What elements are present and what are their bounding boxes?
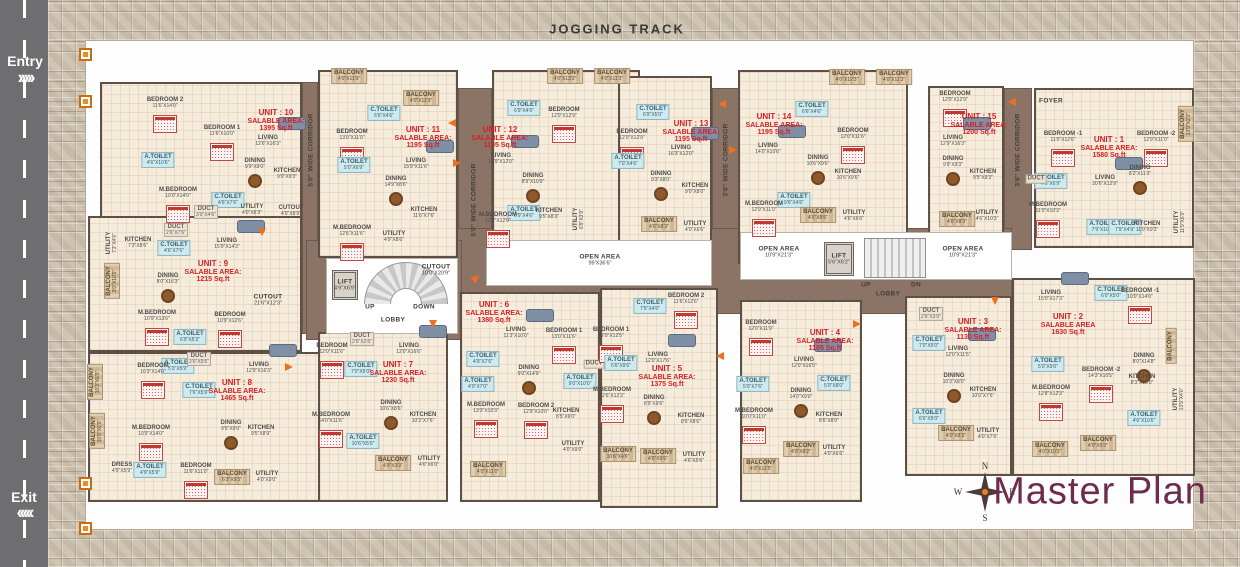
room-label-a-toilet: A.TOILET5'0"X9'0" <box>1031 356 1064 372</box>
room-label-living: LIVING14'0"X10'6" <box>755 143 780 155</box>
room-label-m-bedroom: M.BEDROOM12'9"X11'0" <box>745 201 783 213</box>
room-label-balcony: BALCONY4'0"X13'3" <box>547 68 583 84</box>
room-label-balcony: BALCONY4'0"X11'0" <box>470 461 506 477</box>
room-label-living: LIVING12'0"X11'5" <box>945 346 970 358</box>
unit-label-unit-4: UNIT : 4SALABLE AREA:1105 Sq.ft <box>797 329 854 353</box>
unit-label-unit-9: UNIT : 9SALABLE AREA:1215 Sq.ft <box>185 260 242 284</box>
room-label-dining: DINING14'0"X9'0" <box>790 388 813 400</box>
compass-center-dot <box>982 489 988 495</box>
room-label-a-toilet: A.TOILET5'6"X9'6" <box>604 355 637 371</box>
unit-label-unit-12: UNIT : 12SALABLE AREA:1195 Sq.ft <box>472 126 529 150</box>
room-label-kitchen: KITCHEN10'3"X7'6" <box>410 412 437 424</box>
plan-label-cutout: CUTOUT21'6"X12'3" <box>254 293 283 306</box>
room-label-a-toilet: A.TOILET4'6"X10'6" <box>1127 410 1160 426</box>
bed-icon <box>552 125 576 143</box>
bed-icon <box>1128 306 1152 324</box>
direction-arrow-icon <box>991 297 999 305</box>
plan-label-3-6-wide-corridor: 3'6" WIDE CORRIDOR <box>722 123 729 196</box>
room-label-a-toilet: A.TOILET4'6"X10'6" <box>141 152 174 168</box>
room-label-utility: UTILITY4'0"X6'3" <box>241 204 264 216</box>
entry-chevrons-icon: ››››› <box>18 68 33 89</box>
room-label-balcony: BALCONY4'6"X9'6" <box>640 448 676 464</box>
room-label-dining: DINING9'0"X14'9" <box>518 365 541 377</box>
room-label-dining: DINING8'9"X10'9" <box>522 173 545 185</box>
plan-label-open-area: OPEN AREA99'X36'6" <box>579 253 620 266</box>
room-label-c-toilet: C.TOILET7'0"X5'0" <box>912 335 945 351</box>
room-label-bedroom: BEDROOM12'0"X11'6" <box>837 128 868 140</box>
bed-icon <box>841 146 865 164</box>
room-label-c-toilet: C.TOILET6'6"X4'6" <box>367 105 400 121</box>
room-label-balcony: BALCONY10'3"X6'9" <box>87 364 103 400</box>
bed-icon <box>145 328 169 346</box>
bed-icon <box>320 361 344 379</box>
room-label-dining: DINING10'6"X9'6" <box>807 155 830 167</box>
direction-arrow-icon <box>285 363 293 371</box>
direction-arrow-icon <box>258 228 266 236</box>
plan-label-open-area: OPEN AREA10'9"X21'3" <box>758 245 799 258</box>
room-label-utility: UTILITY13'9"X4'0" <box>1173 388 1185 411</box>
room-label-duct: DUCT2'6"X7'6" <box>164 223 188 237</box>
paver-band-right <box>1194 40 1240 530</box>
dining-table-icon <box>224 436 238 450</box>
room-label-c-toilet: C.TOILET4'6"X7'6" <box>157 240 190 256</box>
room-label-balcony: BALCONY4'9"X3'3" <box>375 455 411 471</box>
direction-arrow-icon <box>1008 98 1016 106</box>
room-label-cutout: CUTOUT4'0"X8'9" <box>279 205 304 217</box>
room-label-m-bedroom: M.BEDROOM10'9"X13'6" <box>138 310 176 322</box>
room-label-utility: UTILITY11'9"X6'0" <box>1174 211 1186 234</box>
room-label-balcony: BALCONY4'0"X11'5" <box>743 458 779 474</box>
entry-gate-post-icon <box>79 48 92 61</box>
room-label-utility: UTILITY4'6"X10'3" <box>976 210 999 222</box>
bed-icon <box>552 346 576 364</box>
room-label-c-toilet: C.TOILET4'9"X7'6" <box>466 351 499 367</box>
room-label-bedroom-1: BEDROOM -110'0"X14'0" <box>1121 288 1159 300</box>
unit-label-unit-14: UNIT : 14SALABLE AREA:1195 Sq.ft <box>746 113 803 137</box>
unit-label-unit-15: UNIT : 15SALABLE AREA:1200 Sq.ft <box>951 113 1008 137</box>
room-label-c-toilet: C.TOILET7'5"X4'6" <box>633 298 666 314</box>
room-label-bedroom: BEDROOM12'0"X11'9" <box>745 320 776 332</box>
room-label-balcony: BALCONY4'0"X11'3" <box>594 68 630 84</box>
room-label-bedroom: BEDROOM11'6"X11'0" <box>180 463 211 475</box>
room-label-dining: DINING9'9"X9'0" <box>245 158 266 170</box>
plan-label-foyer: FOYER <box>1039 97 1063 104</box>
unit-label-unit-10: UNIT : 10SALABLE AREA:1395 Sq.ft <box>248 109 305 133</box>
staircase-east-icon <box>864 238 926 278</box>
sofa-icon <box>526 309 554 322</box>
room-label-dining: DINING8'0"X14'8" <box>1133 353 1156 365</box>
room-label-m-bedroom: M.BEDROOM12'9"X12'0" <box>479 212 517 224</box>
bed-icon <box>319 430 343 448</box>
unit-label-unit-1: UNIT : 1SALABLE AREA:1580 Sq.ft <box>1081 136 1138 160</box>
plan-label-up: UP <box>365 303 375 310</box>
unit-label-unit-13: UNIT : 13SALABLE AREA:1195 Sq.ft <box>663 120 720 144</box>
room-label-utility: UTILITY4'6"X6'6" <box>843 210 866 222</box>
room-label-bedroom-1: BEDROOM 113'0"X11'6" <box>546 328 582 340</box>
room-label-dining: DINING9'9"X9'3" <box>943 156 964 168</box>
compass-west-label: W <box>954 487 963 497</box>
room-label-utility: UTILITY4'0"X9'0" <box>256 471 279 483</box>
plan-label-dn: DN <box>911 281 921 288</box>
plan-label-lobby: LOBBY <box>876 290 900 297</box>
room-label-duct: DUCT2'6"X3'0" <box>919 307 943 321</box>
dining-table-icon <box>647 411 661 425</box>
room-label-balcony: BALCONY4'6"X8'6" <box>800 207 836 223</box>
room-label-balcony: BALCONY4'0"X12'3" <box>829 69 865 85</box>
room-label-m-bedroom: M.BEDROOM10'9"X14'0" <box>132 425 170 437</box>
room-label-balcony: BALCONY13'9"X2'3" <box>1178 106 1194 142</box>
direction-arrow-icon <box>429 320 437 328</box>
room-label-bedroom: BEDROOM10'9"X12'6" <box>214 312 245 324</box>
room-label-kitchen: KITCHEN9'5"X8'3" <box>536 208 563 220</box>
room-label-c-toilet: C.TOILET6'9"X5'0" <box>636 104 669 120</box>
entry-gate-post-icon <box>79 95 92 108</box>
exit-gate-post-icon <box>79 522 92 535</box>
room-label-balcony: BALCONY4'0"X11'3" <box>876 69 912 85</box>
dining-table-icon <box>811 171 825 185</box>
room-label-duct: DUCT <box>1026 175 1047 184</box>
room-label-c-toilet: C.TOILET5'0"X8'0" <box>817 375 850 391</box>
room-label-a-toilet: A.TOILET10'6"X5'0" <box>346 433 379 449</box>
plan-label-down: DOWN <box>413 303 435 310</box>
bed-icon <box>1089 385 1113 403</box>
plan-label-lobby: LOBBY <box>381 316 405 323</box>
room-label-utility: UTILITY4'6"X6'0" <box>418 456 441 468</box>
room-label-bedroom: BEDROOM13'0"X11'0" <box>336 129 367 141</box>
room-label-duct: DUCT2'6"X5'6" <box>187 352 211 366</box>
dining-table-icon <box>522 381 536 395</box>
page-title: Master Plan <box>993 471 1207 514</box>
room-label-kitchen: KITCHEN11'0"X9'3" <box>1134 221 1161 233</box>
compass-south-label: S <box>982 513 987 523</box>
unit-label-unit-5: UNIT : 5SALABLE AREA:1375 Sq.ft <box>639 365 696 389</box>
room-label-living: LIVING16'9"X12'0" <box>488 153 513 165</box>
room-label-kitchen: KITCHEN9'0"X8'0" <box>682 183 709 195</box>
room-label-c-toilet: C.TOILET6'9"X4'6" <box>507 100 540 116</box>
room-label-duct: DUCT2'6"X2'6" <box>350 332 374 346</box>
room-label-bedroom-2: BEDROOM -214'3"X10'5" <box>1082 367 1120 379</box>
room-label-bedroom: BEDROOM10'3"X14'0" <box>137 363 168 375</box>
direction-arrow-icon <box>729 146 737 154</box>
room-label-balcony: BALCONY4'6"X8'3" <box>939 211 975 227</box>
room-label-bedroom-2: BEDROOM 212'9"X10'0" <box>518 403 554 415</box>
unit-label-unit-6: UNIT : 6SALABLE AREA:1380 Sq.ft <box>466 301 523 325</box>
room-label-dining: DINING8'0"X16'3" <box>157 273 180 285</box>
bed-icon <box>139 443 163 461</box>
room-label-dining: DINING9'3"X8'0" <box>651 171 672 183</box>
dining-table-icon <box>947 389 961 403</box>
exit-gate-post-icon <box>79 477 92 490</box>
dining-table-icon <box>1133 181 1147 195</box>
dining-table-icon <box>161 289 175 303</box>
room-label-a-toilet: A.TOILET9'0"X10'0" <box>563 373 596 389</box>
bed-icon <box>184 481 208 499</box>
room-label-m-bedroom: M.BEDROOM10'0"X14'0" <box>159 187 197 199</box>
room-label-kitchen: KITCHEN11'6"X7'6" <box>411 207 438 219</box>
room-label-balcony: BALCONY4'0"X8'3" <box>641 216 677 232</box>
room-label-bedroom-2: BEDROOM -212'9"X11'0" <box>1137 131 1175 143</box>
jogging-track-label: JOGGING TRACK <box>549 22 685 37</box>
room-label-m-bedroom: M.BEDROOM12'6"X11'6" <box>333 225 371 237</box>
room-label-living: LIVING11'3"X10'0" <box>503 327 528 339</box>
direction-arrow-icon <box>718 100 726 108</box>
room-label-a-toilet: A.TOILET7'0"X4'6" <box>611 153 644 169</box>
room-label-balcony: BALCONY4'0"X8'2" <box>783 441 819 457</box>
plan-label-lift: LIFT4'9"X6'9" <box>334 278 356 291</box>
bed-icon <box>210 143 234 161</box>
room-label-dining: DINING8'2"X11'3" <box>1129 165 1151 177</box>
room-label-m-bedroom: M.BEDROOM11'0"X10'3" <box>1029 202 1067 214</box>
room-label-balcony: BALCONY4'0"X10'3" <box>1032 441 1068 457</box>
exit-chevrons-icon: ‹‹‹‹‹ <box>17 503 32 524</box>
room-label-kitchen: KITCHEN9'0"X9'3" <box>274 168 301 180</box>
room-label-utility: UTILITY7'3"X4'6" <box>106 232 118 255</box>
unit-label-unit-3: UNIT : 3SALABLE AREA:1130 Sq.ft <box>945 318 1002 342</box>
room-label-bedroom: BEDROOM12'0"X11'6" <box>316 343 347 355</box>
room-label-living: LIVING16'3"X12'0" <box>668 145 693 157</box>
room-label-bedroom-1: BEDROOM 111'6"X10'0" <box>204 125 240 137</box>
dining-table-icon <box>654 187 668 201</box>
plan-label-up: UP <box>861 281 871 288</box>
room-label-bedroom: BEDROOM12'0"X12'9" <box>548 107 579 119</box>
room-label-utility: UTILITY4'0"X6'6" <box>823 445 846 457</box>
room-label-living: LIVING15'9"X11'6" <box>403 158 428 170</box>
room-label-dining: DINING14'9"X8'6" <box>385 176 408 188</box>
room-label-kitchen: KITCHEN8'3"X10'0" <box>1129 374 1156 386</box>
unit-label-unit-2: UNIT : 2SALABLE AREA1630 Sq.ft <box>1041 313 1096 337</box>
room-label-duct: DUCT3'0"X4'6" <box>194 205 218 219</box>
direction-arrow-icon <box>453 159 461 167</box>
dining-table-icon <box>946 172 960 186</box>
bed-icon <box>742 426 766 444</box>
room-label-balcony: BALCONY4'0"X11'9" <box>403 90 439 106</box>
room-label-utility: UTILITY4'9"X8'6" <box>383 231 406 243</box>
plan-label-cutout: CUTOUT10'0"X20'9" <box>422 263 451 276</box>
room-label-a-toilet: A.TOILET6'6"X5'0" <box>912 408 945 424</box>
room-label-balcony: BALCONY6'3"X9'3" <box>214 469 250 485</box>
unit-label-unit-11: UNIT : 11SALABLE AREA:1195 Sq.ft <box>395 126 452 150</box>
compass-north-label: N <box>982 461 989 471</box>
bed-icon <box>166 205 190 223</box>
bed-icon <box>752 219 776 237</box>
room-label-kitchen: KITCHEN8'5"X9'0" <box>553 408 580 420</box>
room-label-dress: DRESS4'9"X5'9" <box>112 462 133 474</box>
room-label-a-toilet: A.TOILET6'9"X5'3" <box>173 329 206 345</box>
room-label-kitchen: KITCHEN9'5"X9'3" <box>970 169 997 181</box>
room-label-bedroom-2: BEDROOM 211'6"X14'0" <box>147 97 183 109</box>
room-label-kitchen: KITCHEN9'5"X8'9" <box>248 425 275 437</box>
room-label-m-bedroom: M.BEDROOM12'6"X12'3" <box>593 387 631 399</box>
unit-label-unit-8: UNIT : 8SALABLE AREA:1465 Sq.ft <box>209 379 266 403</box>
room-label-balcony: BALCONY <box>1166 328 1177 364</box>
room-label-kitchen: KITCHEN8'6"X8'6" <box>678 413 705 425</box>
dining-table-icon <box>794 404 808 418</box>
room-label-a-toilet: A.TOILET4'9"X5'9" <box>133 462 166 478</box>
room-label-living: LIVING12'9"X16'3" <box>246 362 271 374</box>
unit-label-unit-7: UNIT : 7SALABLE AREA:1230 Sq.ft <box>370 361 427 385</box>
plan-label-3-6-wide-corridor: 3'6" WIDE CORRIDOR <box>1014 113 1021 186</box>
paver-band-bottom <box>48 530 1240 567</box>
room-label-dining: DINING10'3"X8'0" <box>943 373 966 385</box>
dining-table-icon <box>248 174 262 188</box>
room-label-bedroom-1: BEDROOM 112'0"X12'5" <box>593 327 629 339</box>
bed-icon <box>1036 220 1060 238</box>
room-label-utility: UTILITY4'0"X7'6" <box>977 428 1000 440</box>
room-label-bedroom: BEDROOM12'0"X12'9" <box>616 129 647 141</box>
room-label-m-bedroom: M.BEDROOM14'0"X11'6" <box>312 412 350 424</box>
dining-table-icon <box>384 416 398 430</box>
room-label-dining: DINING10'6"X8'6" <box>380 400 403 412</box>
paver-band-left <box>48 40 85 530</box>
room-label-bedroom-1: BEDROOM -111'0"X12'6" <box>1044 131 1082 143</box>
room-label-kitchen: KITCHEN7'3"X8'6" <box>125 237 152 249</box>
bed-icon <box>674 311 698 329</box>
direction-arrow-icon <box>853 320 861 328</box>
plan-label-5-0-wide-corridor: 5'0" WIDE CORRIDOR <box>307 113 314 186</box>
room-label-living: LIVING12'0"X17'6" <box>645 352 670 364</box>
dining-table-icon <box>389 192 403 206</box>
bed-icon <box>474 420 498 438</box>
bed-icon <box>153 115 177 133</box>
sofa-icon <box>1061 272 1089 285</box>
room-label-balcony: BALCONY10'6"X4'6" <box>600 446 636 462</box>
bed-icon <box>1051 149 1075 167</box>
room-label-m-bedroom: M.BEDROOM12'8"X12'3" <box>1032 385 1070 397</box>
room-label-living: LIVING15'9"X14'3" <box>214 238 239 250</box>
room-label-utility: UTILITY6'9"X3'9" <box>573 208 585 231</box>
dining-table-icon <box>526 189 540 203</box>
bed-icon <box>600 405 624 423</box>
bed-icon <box>141 381 165 399</box>
bed-icon <box>749 338 773 356</box>
room-label-balcony: BALCONY4'0"X11'9" <box>331 68 367 84</box>
room-label-bedroom: BEDROOM12'0"X12'9" <box>939 91 970 103</box>
room-label-living: LIVING12'0"X16'6" <box>396 343 421 355</box>
room-label-dining: DINING9'5"X9'0" <box>221 420 242 432</box>
bed-icon <box>486 230 510 248</box>
room-label-m-bedroom: M.BEDROOM13'3"X10'3" <box>467 402 505 414</box>
room-label-balcony: BALCONY4'0"X8'3" <box>938 425 974 441</box>
room-label-utility: UTILITY4'0"X9'0" <box>562 441 585 453</box>
room-label-living: LIVING15'0"X17'3" <box>1038 290 1063 302</box>
sofa-icon <box>668 334 696 347</box>
room-label-utility: UTILITY4'0"X6'6" <box>684 221 707 233</box>
sofa-icon <box>269 344 297 357</box>
direction-arrow-icon <box>716 352 724 360</box>
direction-arrow-icon <box>448 119 456 127</box>
room-label-kitchen: KITCHEN10'0"X7'6" <box>970 387 997 399</box>
plan-label-5-0-wide-corridor: 5'0" WIDE CORRIDOR <box>470 163 477 236</box>
bed-icon <box>218 330 242 348</box>
room-label-a-toilet: A.TOILET5'0"X6'9" <box>337 157 370 173</box>
bed-icon <box>340 243 364 261</box>
plan-label-open-area: OPEN AREA10'9"X21'3" <box>942 245 983 258</box>
plan-label-lift: LIFT5'6"X6'2" <box>828 252 850 265</box>
room-label-kitchen: KITCHEN8'6"X8'0" <box>816 412 843 424</box>
room-label-kitchen: KITCHEN10'6"X9'6" <box>835 169 862 181</box>
room-label-bedroom-2: BEDROOM 211'6"X12'6" <box>668 293 704 305</box>
room-label-a-toilet: A.TOILET5'0"X7'6" <box>736 376 769 392</box>
room-label-balcony: BALCONY3'0"X10'9" <box>104 263 120 299</box>
room-label-balcony: BALCONY10'9"X6'9" <box>89 413 105 449</box>
room-label-balcony: BALCONY4'0"X5'3" <box>1080 435 1116 451</box>
bed-icon <box>524 421 548 439</box>
room-label-living: LIVING12'0"X16'5" <box>791 357 816 369</box>
room-label-living: LIVING20'6"X12'9" <box>1092 175 1117 187</box>
room-label-a-toilet: A.TOILET4'0"X7'0" <box>461 376 494 392</box>
room-label-utility: UTILITY4'6"X5'6" <box>683 452 706 464</box>
room-label-dining: DINING8'9"X9'6" <box>644 395 665 407</box>
master-plan-canvas: Entry ››››› Exit ‹‹‹‹‹ JOGGING TRACK UNI… <box>0 0 1240 567</box>
room-label-living: LIVING12'6"X16'3" <box>255 135 280 147</box>
bed-icon <box>1039 403 1063 421</box>
room-label-m-bedroom: M.BEDROOM10'0"X11'0" <box>735 408 773 420</box>
